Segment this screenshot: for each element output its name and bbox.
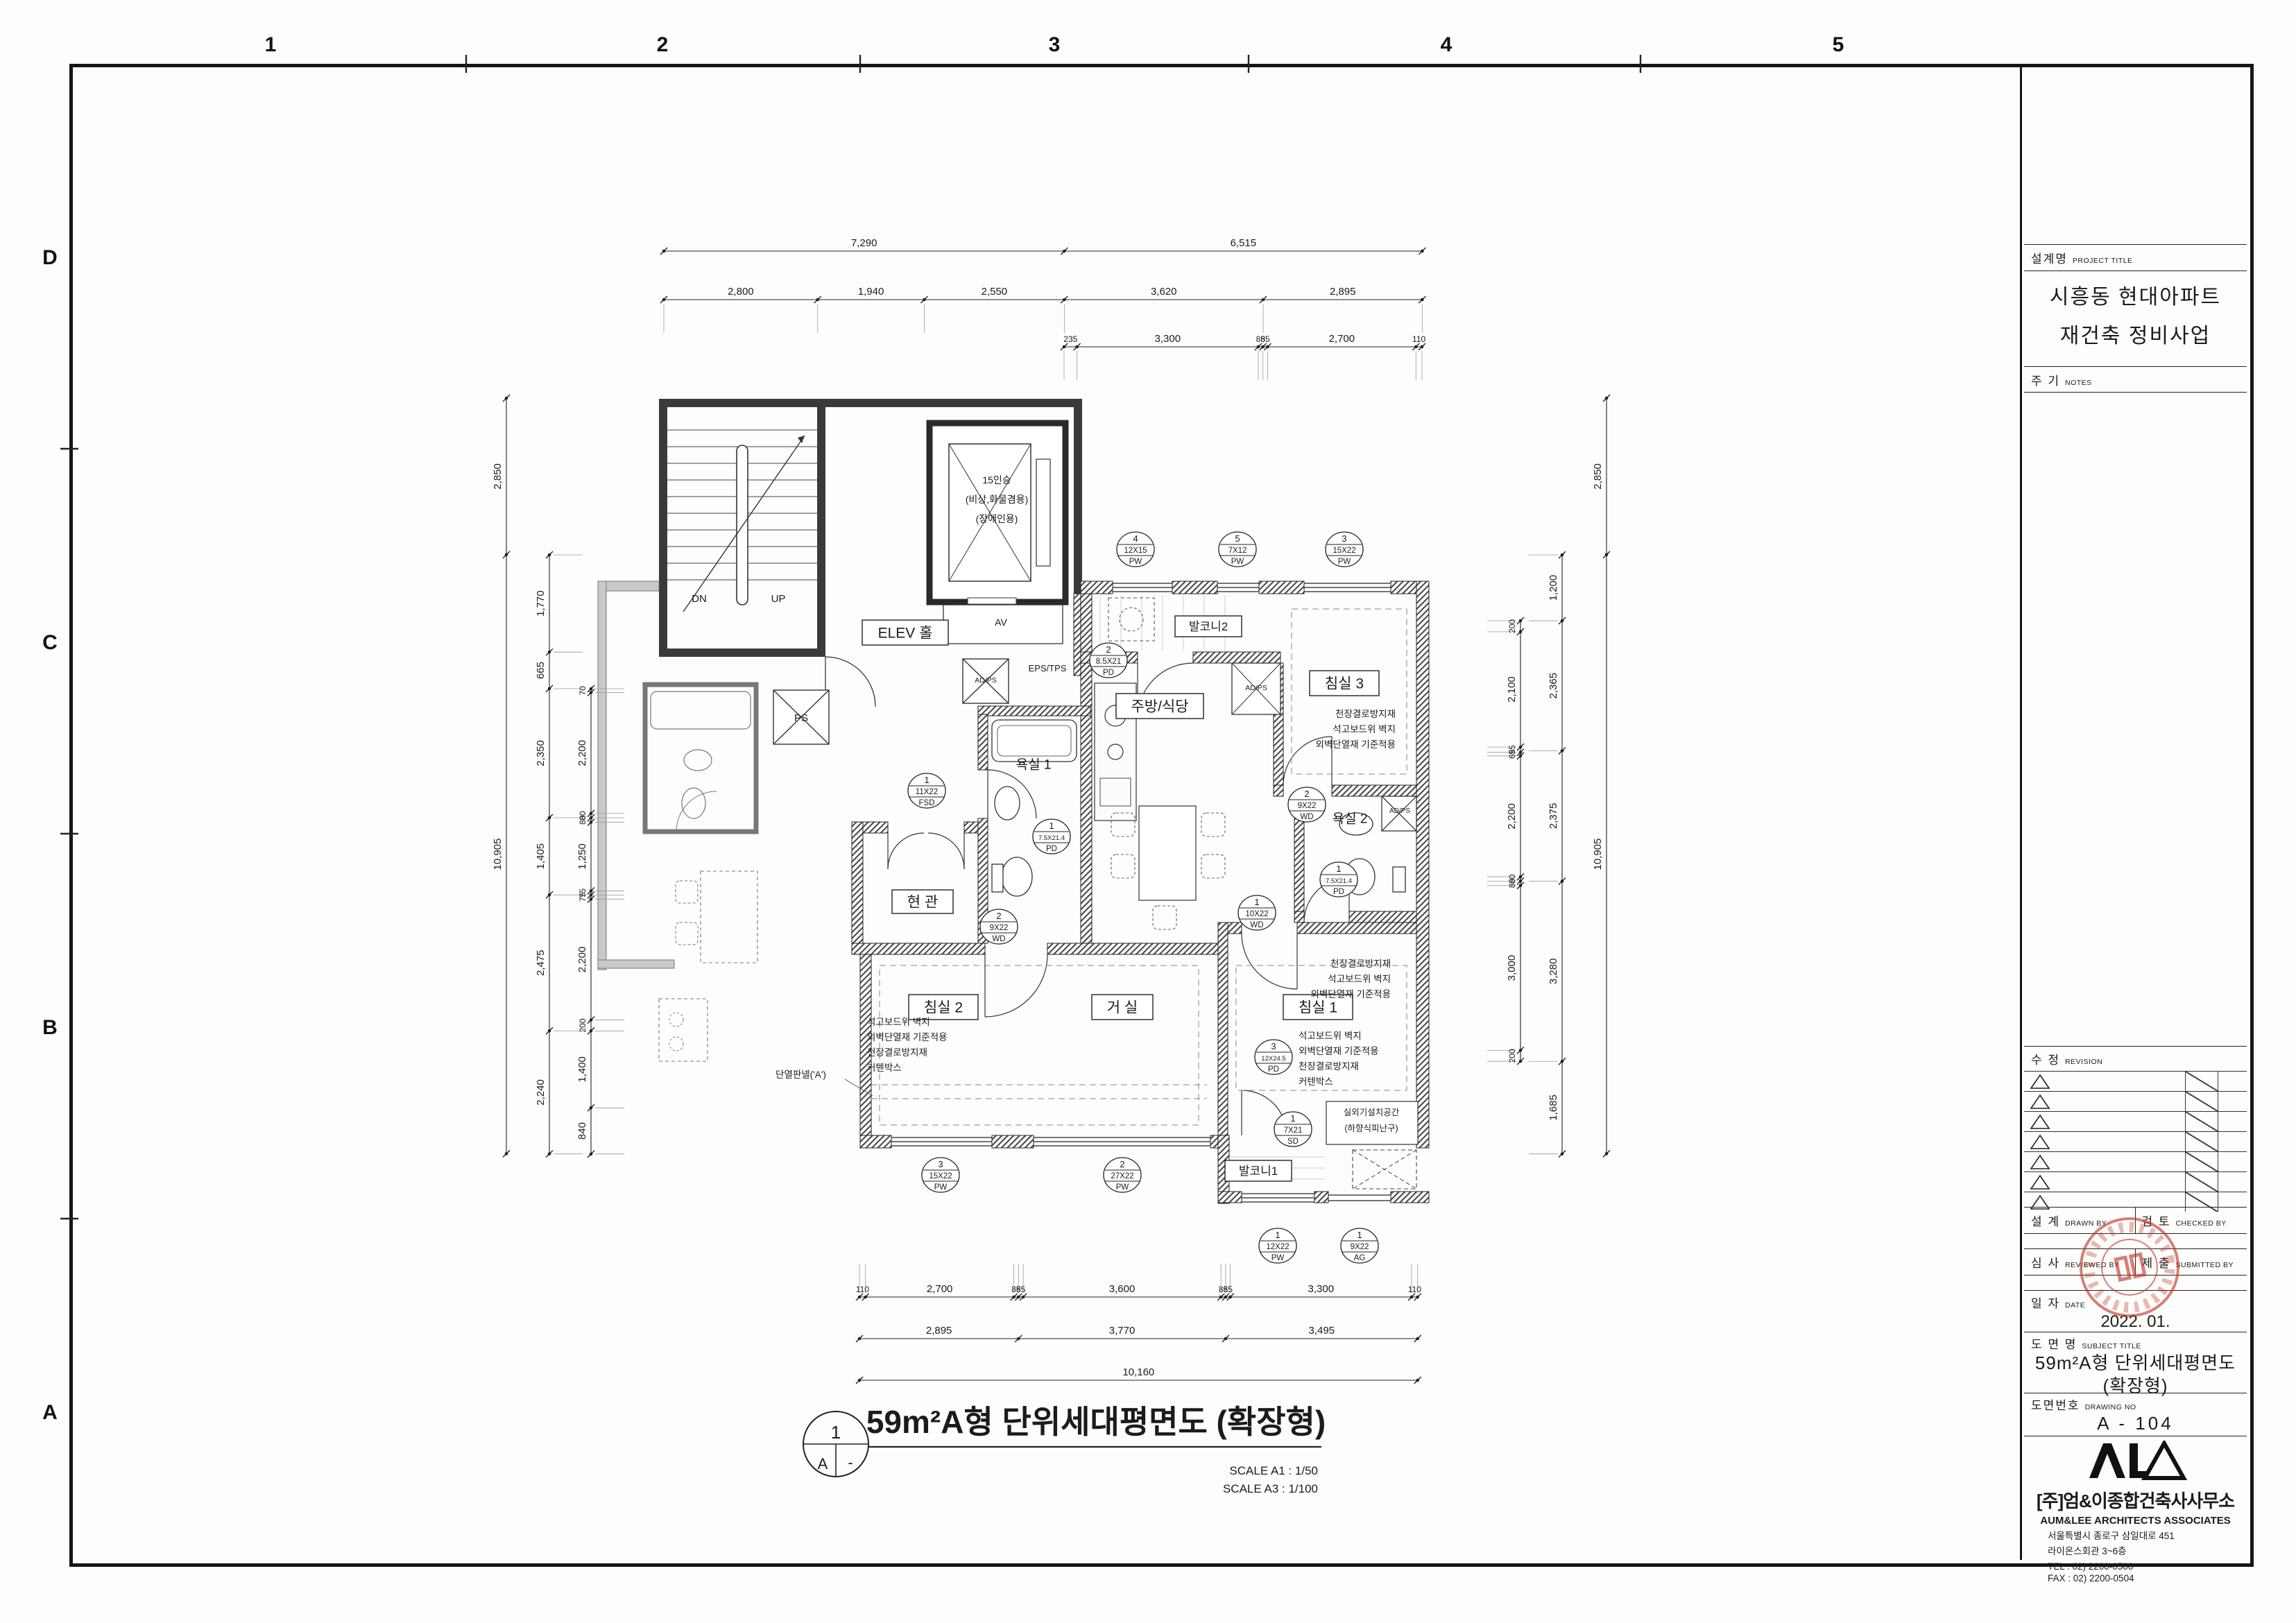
tag-mark: FSD [919, 799, 935, 807]
tag-size: 12X24.5 [1261, 1055, 1285, 1063]
dim-left_outer-1: 10,905 [492, 839, 504, 870]
dim-left_inner-7: 2,200 [576, 947, 588, 973]
note-line: 외벽단열재 기준적용 [1299, 1046, 1379, 1056]
drawing-title-texts: 1A-59m²A형 단위세대평면도 (확장형)SCALE A1 : 1/50SC… [818, 1404, 1326, 1495]
small-label: PS [794, 712, 808, 724]
tag-mark: PD [1046, 845, 1057, 853]
tag-no: 3 [1342, 533, 1346, 544]
tag-no: 5 [1235, 533, 1240, 544]
tag-size: 10X22 [1245, 910, 1268, 918]
tag-size: 15X22 [1333, 547, 1355, 555]
note-line: 커텐박스 [1299, 1076, 1333, 1087]
dim-top1-1: 6,515 [1231, 237, 1257, 249]
dim-bottom2-2: 3,495 [1308, 1325, 1335, 1337]
small-label: AV [995, 617, 1007, 628]
notes-label-en: NOTES [2065, 379, 2092, 387]
company-address-2: 라이온스회관 3~6층 [2024, 1543, 2247, 1557]
revision-slash [2185, 1132, 2218, 1151]
revision-header: 수 정REVISION [2024, 1046, 2247, 1071]
dim-right_outer-1: 10,905 [1592, 839, 1604, 870]
dim-bottom1-3: 85 [1016, 1285, 1026, 1294]
dim-top1-0: 7,290 [851, 237, 877, 249]
tag-size: 9X22 [990, 924, 1009, 932]
tag-mark: WD [992, 935, 1005, 943]
revision-row [2024, 1111, 2247, 1131]
dim-left_mid-0: 1,770 [535, 590, 547, 617]
revision-slash [2185, 1152, 2218, 1171]
elevator-label: (비상,화물겸용) [966, 494, 1029, 505]
dim-left_inner-4: 1,250 [576, 843, 588, 870]
dim-left_outer-0: 2,850 [492, 463, 504, 490]
scale-note: SCALE A1 : 1/50 [1229, 1464, 1318, 1477]
dim-right_inner-0: 200 [1507, 619, 1517, 633]
revision-row [2024, 1091, 2247, 1111]
tag-no: 2 [1106, 644, 1111, 655]
dim-right_mid-4: 1,685 [1548, 1094, 1559, 1121]
small-label: AD/PS [975, 676, 997, 685]
note-line: 단열판넬('A') [776, 1070, 826, 1080]
dim-left_mid-5: 2,240 [535, 1079, 547, 1106]
tag-mark: PD [1103, 669, 1114, 677]
drawing-title: 59m²A형 단위세대평면도 (확장형) [866, 1404, 1326, 1440]
tag-no: 2 [1304, 789, 1309, 799]
tag-no: 1 [1336, 864, 1341, 874]
ac-room-label: 실외기설치공간 [1344, 1108, 1400, 1117]
project-title-line2: 재건축 정비사업 [2024, 317, 2247, 356]
stair [667, 430, 875, 707]
drawing-no-row: 도면번호DRAWING NO A - 104 [2024, 1393, 2247, 1436]
dim-right_mid-1: 2,365 [1548, 673, 1559, 699]
tag-mark: PW [1116, 1183, 1129, 1192]
room-label: 거 실 [1107, 999, 1138, 1015]
scale-note: SCALE A3 : 1/100 [1223, 1482, 1318, 1495]
tag-size: 9X22 [1351, 1243, 1369, 1251]
subject-label-en: SUBJECT TITLE [2082, 1342, 2141, 1350]
elevator-label: 15인승 [982, 474, 1011, 486]
room-label: 발코니2 [1189, 620, 1228, 633]
company-logo-icon [2084, 1441, 2188, 1481]
dim-right_mid-2: 2,375 [1548, 803, 1559, 830]
tag-size: 7.5X21.4 [1038, 834, 1065, 842]
tag-mark: SD [1287, 1137, 1299, 1146]
tag-size: 9X22 [1298, 802, 1317, 810]
revision-row [2024, 1071, 2247, 1091]
dim-bottom2-0: 2,895 [926, 1325, 952, 1337]
drawing-sheet: 12345DCBA [0, 0, 2296, 1623]
dim-left_inner-9: 1,400 [576, 1056, 588, 1083]
dim-right_inner-4: 2,200 [1506, 803, 1518, 830]
note-line: 석고보드위 벽지 [1333, 724, 1396, 735]
drawing-no-value: A - 104 [2024, 1413, 2247, 1434]
revision-label: 수 정 [2031, 1054, 2060, 1067]
dim-bottom1-6: 85 [1224, 1285, 1233, 1294]
dim-top2-2: 2,550 [982, 286, 1008, 298]
dim-top2-4: 2,895 [1330, 286, 1356, 298]
dim-top3-1: 3,300 [1155, 333, 1181, 345]
note-line: 천장결로방지재 [1299, 1061, 1359, 1072]
company-fax: FAX : 02) 2200-0504 [2024, 1573, 2247, 1583]
dim-left_inner-8: 200 [578, 1018, 588, 1032]
dim-left_inner-0: 70 [578, 686, 588, 696]
small-label: AD/PS [1245, 684, 1267, 692]
room-label: 발코니1 [1239, 1165, 1278, 1178]
dim-top2-1: 1,940 [858, 286, 884, 298]
note-line: 외벽단열재 기준적용 [1315, 739, 1396, 750]
dim-top3-4: 2,700 [1329, 333, 1355, 345]
dim-left_inner-1: 2,200 [576, 740, 588, 766]
room-label: ELEV 홀 [878, 625, 933, 641]
tag-mark: WD [1250, 921, 1263, 929]
room-label: 침실 1 [1299, 999, 1337, 1015]
dim-left_inner-6: 75 [578, 892, 588, 902]
note-line: 외벽단열재 기준적용 [867, 1032, 948, 1042]
dim-right_inner-1: 2,100 [1506, 676, 1518, 703]
small-label: DN [692, 593, 707, 605]
dim-left_mid-1: 665 [535, 662, 547, 679]
subject-row: 도 면 명SUBJECT TITLE 59m²A형 단위세대평면도 (확장형) [2024, 1332, 2247, 1393]
note-line: 석고보드위 벽지 [1299, 1031, 1362, 1041]
dim-right_mid-3: 3,280 [1548, 959, 1559, 985]
dim-bottom1-4: 3,600 [1109, 1283, 1136, 1295]
tag-no: 1 [1254, 897, 1259, 907]
note-line: 외벽단열재 기준적용 [1310, 989, 1391, 999]
tag-no: 1 [1290, 1113, 1295, 1124]
dim-right_inner-7: 3,000 [1506, 955, 1518, 981]
company-block: [주]엄&이종합건축사사무소 AUM&LEE ARCHITECTS ASSOCI… [2024, 1436, 2247, 1561]
tag-mark: PW [1338, 558, 1351, 566]
dim-left_mid-4: 2,475 [535, 950, 547, 976]
drawing-no-label: 도면번호 [2031, 1399, 2080, 1412]
small-label: UP [771, 593, 786, 605]
tag-mark: PW [1271, 1254, 1285, 1262]
date-label: 일 자 [2031, 1297, 2060, 1310]
room-label: 주방/식당 [1131, 698, 1188, 714]
tag-size: 7X12 [1228, 547, 1247, 555]
dim-left_mid-3: 1,405 [535, 843, 547, 870]
dim-bottom3-0: 10,160 [1122, 1366, 1154, 1378]
company-address-1: 서울특별시 종로구 삼일대로 451 [2024, 1528, 2247, 1542]
tag-size: 27X22 [1111, 1172, 1133, 1180]
dim-right_outer-0: 2,850 [1592, 463, 1604, 490]
note-line: 천장결로방지재 [1330, 959, 1391, 969]
tag-size: 7X21 [1284, 1126, 1303, 1135]
room-label: 욕실 2 [1333, 811, 1368, 827]
revision-triangle-icon [2030, 1134, 2050, 1151]
dim-bottom1-7: 3,300 [1308, 1283, 1335, 1295]
tag-no: 1 [924, 775, 929, 785]
project-title-line1: 시흥동 현대아파트 [2024, 278, 2247, 317]
company-tel: TEL : 02) 2200-0500 [2024, 1561, 2247, 1572]
dim-right_mid-0: 1,200 [1548, 575, 1559, 601]
note-line: 천장결로방지재 [1335, 709, 1396, 719]
dim-left_inner-10: 840 [576, 1122, 588, 1140]
approval-stamp [2059, 1197, 2200, 1337]
dim-right_inner-8: 200 [1507, 1049, 1517, 1063]
tag-mark: PD [1333, 888, 1344, 896]
dim-top3-0: 235 [1063, 334, 1077, 344]
notes-header: 주 기NOTES [2024, 366, 2247, 393]
room-label: 침실 3 [1325, 676, 1364, 692]
tag-size: 8.5X21 [1096, 658, 1121, 666]
dim-bottom1-0: 110 [856, 1285, 869, 1294]
tag-no: 2 [1120, 1159, 1124, 1169]
checked-label-en: CHECKED BY [2175, 1219, 2226, 1228]
tag-no: 4 [1133, 533, 1138, 544]
revision-slash [2185, 1112, 2218, 1131]
floor-plan-canvas: 7,2906,5152,8001,9402,5503,6202,8952353,… [0, 0, 2296, 1623]
revision-row [2024, 1171, 2247, 1192]
dim-left_mid-2: 2,350 [535, 740, 547, 766]
company-name-kr: [주]엄&이종합건축사사무소 [2024, 1487, 2247, 1513]
dim-top3-5: 110 [1412, 334, 1425, 344]
dim-right_inner-3: 65 [1507, 749, 1517, 759]
small-label: AD/PS [1389, 807, 1410, 815]
view-number: 1 [831, 1422, 841, 1443]
tag-no: 1 [1275, 1230, 1280, 1240]
revision-triangle-icon [2030, 1074, 2050, 1090]
bathroom1-fixtures [992, 720, 1077, 896]
tag-no: 1 [1357, 1230, 1362, 1240]
tag-mark: PD [1268, 1065, 1279, 1074]
dim-right_inner-6: 80 [1507, 879, 1517, 888]
elevator-label: (장애인용) [976, 513, 1018, 524]
revision-triangle-icon [2030, 1114, 2050, 1131]
dim-left_inner-3: 80 [578, 815, 588, 825]
revision-triangle-icon [2030, 1174, 2050, 1191]
revision-slash [2185, 1072, 2218, 1091]
room-label: 현 관 [907, 894, 938, 910]
revision-label-en: REVISION [2065, 1058, 2102, 1066]
notes-label: 주 기 [2031, 375, 2060, 388]
room-label: 침실 2 [924, 999, 963, 1015]
revision-row [2024, 1151, 2247, 1171]
project-title: 시흥동 현대아파트 재건축 정비사업 [2024, 270, 2247, 366]
dim-bottom1-1: 2,700 [927, 1283, 953, 1295]
tag-mark: WD [1300, 813, 1313, 821]
tag-no: 3 [938, 1159, 943, 1169]
drawing-no-label-en: DRAWING NO [2085, 1403, 2136, 1411]
tag-size: 11X22 [916, 788, 938, 796]
tag-size: 12X22 [1266, 1243, 1289, 1251]
revision-row [2024, 1131, 2247, 1151]
view-dash: - [848, 1454, 853, 1471]
dim-top3-3: 85 [1260, 334, 1270, 344]
note-line: 석고보드위 벽지 [867, 1017, 930, 1027]
dim-top2-0: 2,800 [728, 286, 754, 298]
revision-slash [2185, 1092, 2218, 1111]
project-label: 설계명 [2031, 252, 2068, 266]
note-line: 석고보드위 벽지 [1328, 974, 1391, 984]
revision-triangle-icon [2030, 1154, 2050, 1171]
dim-top2-3: 3,620 [1151, 286, 1177, 298]
tag-mark: PW [1231, 558, 1244, 566]
tag-size: 12X15 [1124, 547, 1147, 555]
revision-rows [2024, 1071, 2247, 1212]
reviewed-label: 심 사 [2031, 1257, 2060, 1270]
note-line: 천장결로방지재 [867, 1047, 927, 1058]
subject-label: 도 면 명 [2031, 1338, 2077, 1351]
revision-slash [2185, 1172, 2218, 1192]
room-label: 욕실 1 [1016, 757, 1052, 773]
note-line: 커텐박스 [867, 1063, 902, 1073]
view-sheet-ref: A [818, 1455, 828, 1472]
tag-size: 15X22 [929, 1172, 952, 1180]
revision-triangle-icon [2030, 1094, 2050, 1110]
company-name-en: AUM&LEE ARCHITECTS ASSOCIATES [2024, 1515, 2247, 1527]
tag-no: 2 [996, 911, 1001, 921]
drawn-label: 설 계 [2031, 1215, 2060, 1228]
tag-size: 7.5X21.4 [1326, 877, 1352, 885]
subject-line1: 59m²A형 단위세대평면도 [2024, 1352, 2247, 1375]
dim-bottom1-8: 110 [1408, 1285, 1421, 1294]
tag-mark: PW [934, 1183, 948, 1192]
dim-bottom2-1: 3,770 [1109, 1325, 1136, 1337]
tag-no: 1 [1049, 821, 1054, 831]
tag-mark: AG [1354, 1254, 1366, 1262]
tag-mark: PW [1129, 558, 1142, 566]
tag-no: 3 [1271, 1041, 1276, 1051]
grid-ticks [60, 55, 1640, 1219]
project-label-en: PROJECT TITLE [2073, 257, 2133, 265]
small-label: EPS/TPS [1029, 663, 1067, 673]
ac-room-label: (하향식피난구) [1344, 1124, 1398, 1133]
project-title-header: 설계명PROJECT TITLE [2024, 244, 2247, 270]
